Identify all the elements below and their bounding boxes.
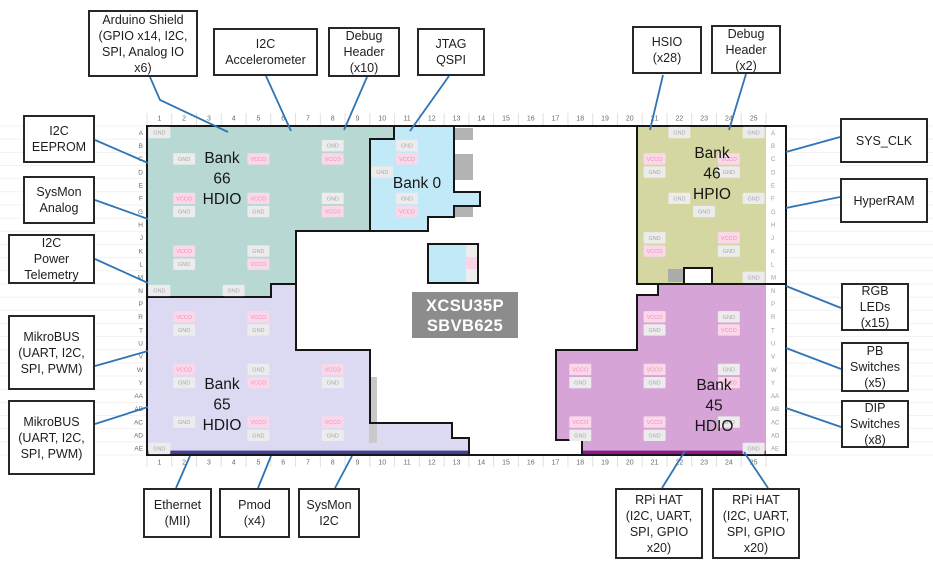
accent-rect <box>455 154 473 180</box>
row-label: K <box>139 248 144 255</box>
column-label: 2 <box>182 116 186 123</box>
accent-rect <box>455 206 473 217</box>
ball-label: VCCO <box>176 249 193 255</box>
ball-label: GND <box>574 433 586 439</box>
callout-pmod: Pmod (x4) <box>219 488 290 538</box>
callout-mikrobus-1: MikroBUS (UART, I2C, SPI, PWM) <box>8 315 95 390</box>
ball-label: VCCO <box>647 157 664 163</box>
callout-arduino-shield: Arduino Shield (GPIO x14, I2C, SPI, Anal… <box>88 10 198 77</box>
accent-rect <box>466 257 477 269</box>
ball-label: GND <box>252 433 264 439</box>
column-label: 8 <box>331 116 335 123</box>
ball-label: GND <box>673 196 685 202</box>
column-label: 24 <box>725 460 733 467</box>
ball-label: GND <box>748 446 760 452</box>
ball-label: VCCO <box>721 236 738 242</box>
row-label: N <box>138 288 143 295</box>
ball-label: GND <box>153 131 165 137</box>
row-label: AC <box>134 419 143 426</box>
column-label: 14 <box>477 116 485 123</box>
column-label: 9 <box>356 460 360 467</box>
ball-label: VCCO <box>399 210 416 216</box>
ball-label: GND <box>648 381 660 387</box>
callout-debug-header-x10: Debug Header (x10) <box>328 27 400 77</box>
accent-rect <box>766 127 785 454</box>
ball-label: GND <box>327 381 339 387</box>
leader-line <box>266 76 291 131</box>
ball-label: GND <box>648 170 660 176</box>
column-label: 5 <box>256 460 260 467</box>
ball-label: GND <box>723 367 735 373</box>
row-label: AD <box>134 433 143 440</box>
row-label: N <box>771 289 775 295</box>
callout-i2c-accelerometer: I2C Accelerometer <box>213 28 318 76</box>
row-label: U <box>771 341 775 347</box>
row-label: A <box>139 130 144 137</box>
fpga-pinout-diagram: GNDGNDGNDVCCOVCCOVCCOVCCOGNDGNDGNDVCCOVC… <box>0 0 933 566</box>
ball-label: GND <box>748 131 760 137</box>
ball-label: GND <box>673 131 685 137</box>
column-label: 19 <box>601 116 609 123</box>
callout-dip-switches: DIP Switches (x8) <box>841 400 909 448</box>
ball-label: GND <box>252 328 264 334</box>
package-ball-map: GNDGNDGNDVCCOVCCOVCCOVCCOGNDGNDGNDVCCOVC… <box>0 0 933 566</box>
row-label: Y <box>139 380 144 387</box>
ball-label: GND <box>401 144 413 150</box>
column-label: 8 <box>331 460 335 467</box>
leader-line <box>662 451 685 488</box>
row-label: T <box>139 327 143 334</box>
row-label: D <box>771 170 776 176</box>
row-label: V <box>771 355 775 361</box>
column-label: 16 <box>527 116 535 123</box>
row-label: AE <box>134 446 143 453</box>
ball-label: GND <box>178 157 190 163</box>
column-label: 5 <box>256 116 260 123</box>
column-label: 12 <box>428 460 436 467</box>
callout-pb-switches: PB Switches (x5) <box>841 342 909 392</box>
ball-label: VCCO <box>721 328 738 334</box>
ball-label: VCCO <box>647 315 664 321</box>
ball-label: GND <box>228 289 240 295</box>
ball-label: GND <box>748 275 760 281</box>
callout-i2c-eeprom: I2C EEPROM <box>23 115 95 163</box>
accent-rect <box>455 128 473 140</box>
ball-label: GND <box>178 262 190 268</box>
column-label: 17 <box>552 460 560 467</box>
ball-label: VCCO <box>250 196 267 202</box>
ball-label: VCCO <box>325 367 342 373</box>
ball-label: VCCO <box>250 381 267 387</box>
column-label: 7 <box>306 116 310 123</box>
column-label: 18 <box>576 116 584 123</box>
column-label: 9 <box>356 116 360 123</box>
callout-mikrobus-2: MikroBUS (UART, I2C, SPI, PWM) <box>8 400 95 475</box>
column-label: 18 <box>576 460 584 467</box>
ball-label: GND <box>376 170 388 176</box>
column-label: 1 <box>157 460 161 467</box>
ball-label: GND <box>723 315 735 321</box>
row-label: H <box>138 222 143 229</box>
callout-ethernet-mii: Ethernet (MII) <box>143 488 212 538</box>
row-label: J <box>771 236 774 242</box>
ball-label: GND <box>748 196 760 202</box>
ball-label: VCCO <box>572 367 589 373</box>
ball-label: GND <box>648 328 660 334</box>
column-label: 12 <box>428 116 436 123</box>
leader-line <box>729 74 746 130</box>
column-label: 23 <box>700 116 708 123</box>
row-label: AA <box>134 393 143 400</box>
row-label: E <box>139 183 144 190</box>
part-number-text: SBVB625 <box>427 317 503 335</box>
ball-label: VCCO <box>250 315 267 321</box>
column-label: 1 <box>157 116 161 123</box>
row-label: P <box>139 301 143 308</box>
ball-label: GND <box>252 249 264 255</box>
column-label: 10 <box>378 116 386 123</box>
callout-sysmon-analog: SysMon Analog <box>23 176 95 224</box>
column-label: 21 <box>651 460 659 467</box>
leader-line <box>786 197 840 208</box>
callout-debug-header-x2: Debug Header (x2) <box>711 25 781 74</box>
column-label: 15 <box>502 116 510 123</box>
ball-label: VCCO <box>250 262 267 268</box>
ball-label: VCCO <box>176 315 193 321</box>
row-label: E <box>771 184 775 190</box>
leader-line <box>786 348 841 369</box>
row-label: C <box>771 157 776 163</box>
callout-sys-clk: SYS_CLK <box>840 118 928 163</box>
row-label: AD <box>771 434 780 440</box>
column-label: 7 <box>306 460 310 467</box>
row-label: J <box>140 235 143 242</box>
ball-label: VCCO <box>647 367 664 373</box>
ball-label: GND <box>252 367 264 373</box>
row-label: G <box>771 210 776 216</box>
row-label: Y <box>771 381 775 387</box>
ball-label: GND <box>178 381 190 387</box>
column-label: 19 <box>601 460 609 467</box>
column-label: 6 <box>281 460 285 467</box>
bank-0-label: Bank 0 <box>393 175 442 192</box>
row-label: D <box>138 169 143 176</box>
ball-label: GND <box>153 446 165 452</box>
ball-label: VCCO <box>399 157 416 163</box>
row-label: V <box>139 354 144 361</box>
column-label: 22 <box>675 116 683 123</box>
part-number-text: XCSU35P <box>426 297 504 315</box>
row-label: F <box>139 196 143 203</box>
ball-label: GND <box>723 249 735 255</box>
column-label: 3 <box>207 460 211 467</box>
ball-label: GND <box>648 236 660 242</box>
column-label: 10 <box>378 460 386 467</box>
ball-label: GND <box>648 433 660 439</box>
column-label: 11 <box>403 460 410 467</box>
ball-label: VCCO <box>250 420 267 426</box>
ball-label: GND <box>178 210 190 216</box>
ball-label: VCCO <box>647 420 664 426</box>
ball-label: VCCO <box>325 420 342 426</box>
ball-label: VCCO <box>250 157 267 163</box>
ball-label: GND <box>153 289 165 295</box>
row-label: H <box>771 223 775 229</box>
callout-hsio: HSIO (x28) <box>632 26 702 74</box>
column-label: 13 <box>453 116 461 123</box>
row-label: B <box>771 144 775 150</box>
leader-line <box>786 408 841 427</box>
ball-label: GND <box>178 420 190 426</box>
row-label: R <box>138 314 143 321</box>
column-label: 17 <box>552 116 560 123</box>
row-label: K <box>771 249 775 255</box>
column-label: 11 <box>403 116 410 123</box>
row-label: U <box>138 340 143 347</box>
column-label: 20 <box>626 116 634 123</box>
row-label: R <box>771 315 776 321</box>
column-label: 14 <box>477 460 485 467</box>
row-label: AB <box>771 407 779 413</box>
row-label: L <box>139 261 143 268</box>
leader-line <box>335 456 352 488</box>
row-label: W <box>771 368 777 374</box>
ball-label: GND <box>574 381 586 387</box>
column-label: 23 <box>700 460 708 467</box>
row-label: F <box>771 197 775 203</box>
callout-jtag-qspi: JTAG QSPI <box>417 28 485 76</box>
column-label: 20 <box>626 460 634 467</box>
callout-rgb-leds: RGB LEDs (x15) <box>841 283 909 331</box>
column-label: 13 <box>453 460 461 467</box>
ball-label: GND <box>723 170 735 176</box>
ball-label: VCCO <box>572 420 589 426</box>
ball-label: GND <box>401 196 413 202</box>
row-label: B <box>139 143 143 150</box>
row-label: P <box>771 302 775 308</box>
row-label: AA <box>771 394 779 400</box>
ball-label: GND <box>327 144 339 150</box>
ball-label: GND <box>178 328 190 334</box>
ball-label: VCCO <box>325 210 342 216</box>
column-label: 4 <box>232 460 236 467</box>
ball-label: VCCO <box>176 367 193 373</box>
column-label: 4 <box>232 116 236 123</box>
leader-line <box>410 76 449 131</box>
row-label: AE <box>771 447 779 453</box>
ball-label: GND <box>252 210 264 216</box>
callout-hyperram: HyperRAM <box>840 178 928 223</box>
callout-rpi-hat-2: RPi HAT (I2C, UART, SPI, GPIO x20) <box>712 488 800 559</box>
ball-label: VCCO <box>647 249 664 255</box>
ball-label: VCCO <box>176 196 193 202</box>
row-label: AC <box>771 420 780 426</box>
column-label: 16 <box>527 460 535 467</box>
leader-line <box>744 452 768 488</box>
ball-label: VCCO <box>325 157 342 163</box>
row-label: M <box>771 276 776 282</box>
accent-rect <box>668 269 683 282</box>
ball-label: GND <box>698 210 710 216</box>
ball-label: GND <box>327 433 339 439</box>
callout-i2c-power-telemetry: I2C Power Telemetry <box>8 234 95 284</box>
callout-rpi-hat-1: RPi HAT (I2C, UART, SPI, GPIO x20) <box>615 488 703 559</box>
column-label: 25 <box>750 116 758 123</box>
ball-label: GND <box>327 196 339 202</box>
row-label: A <box>771 131 775 137</box>
row-label: W <box>137 367 144 374</box>
row-label: T <box>771 328 775 334</box>
column-label: 15 <box>502 460 510 467</box>
leader-line <box>150 77 228 132</box>
callout-sysmon-i2c: SysMon I2C <box>298 488 360 538</box>
